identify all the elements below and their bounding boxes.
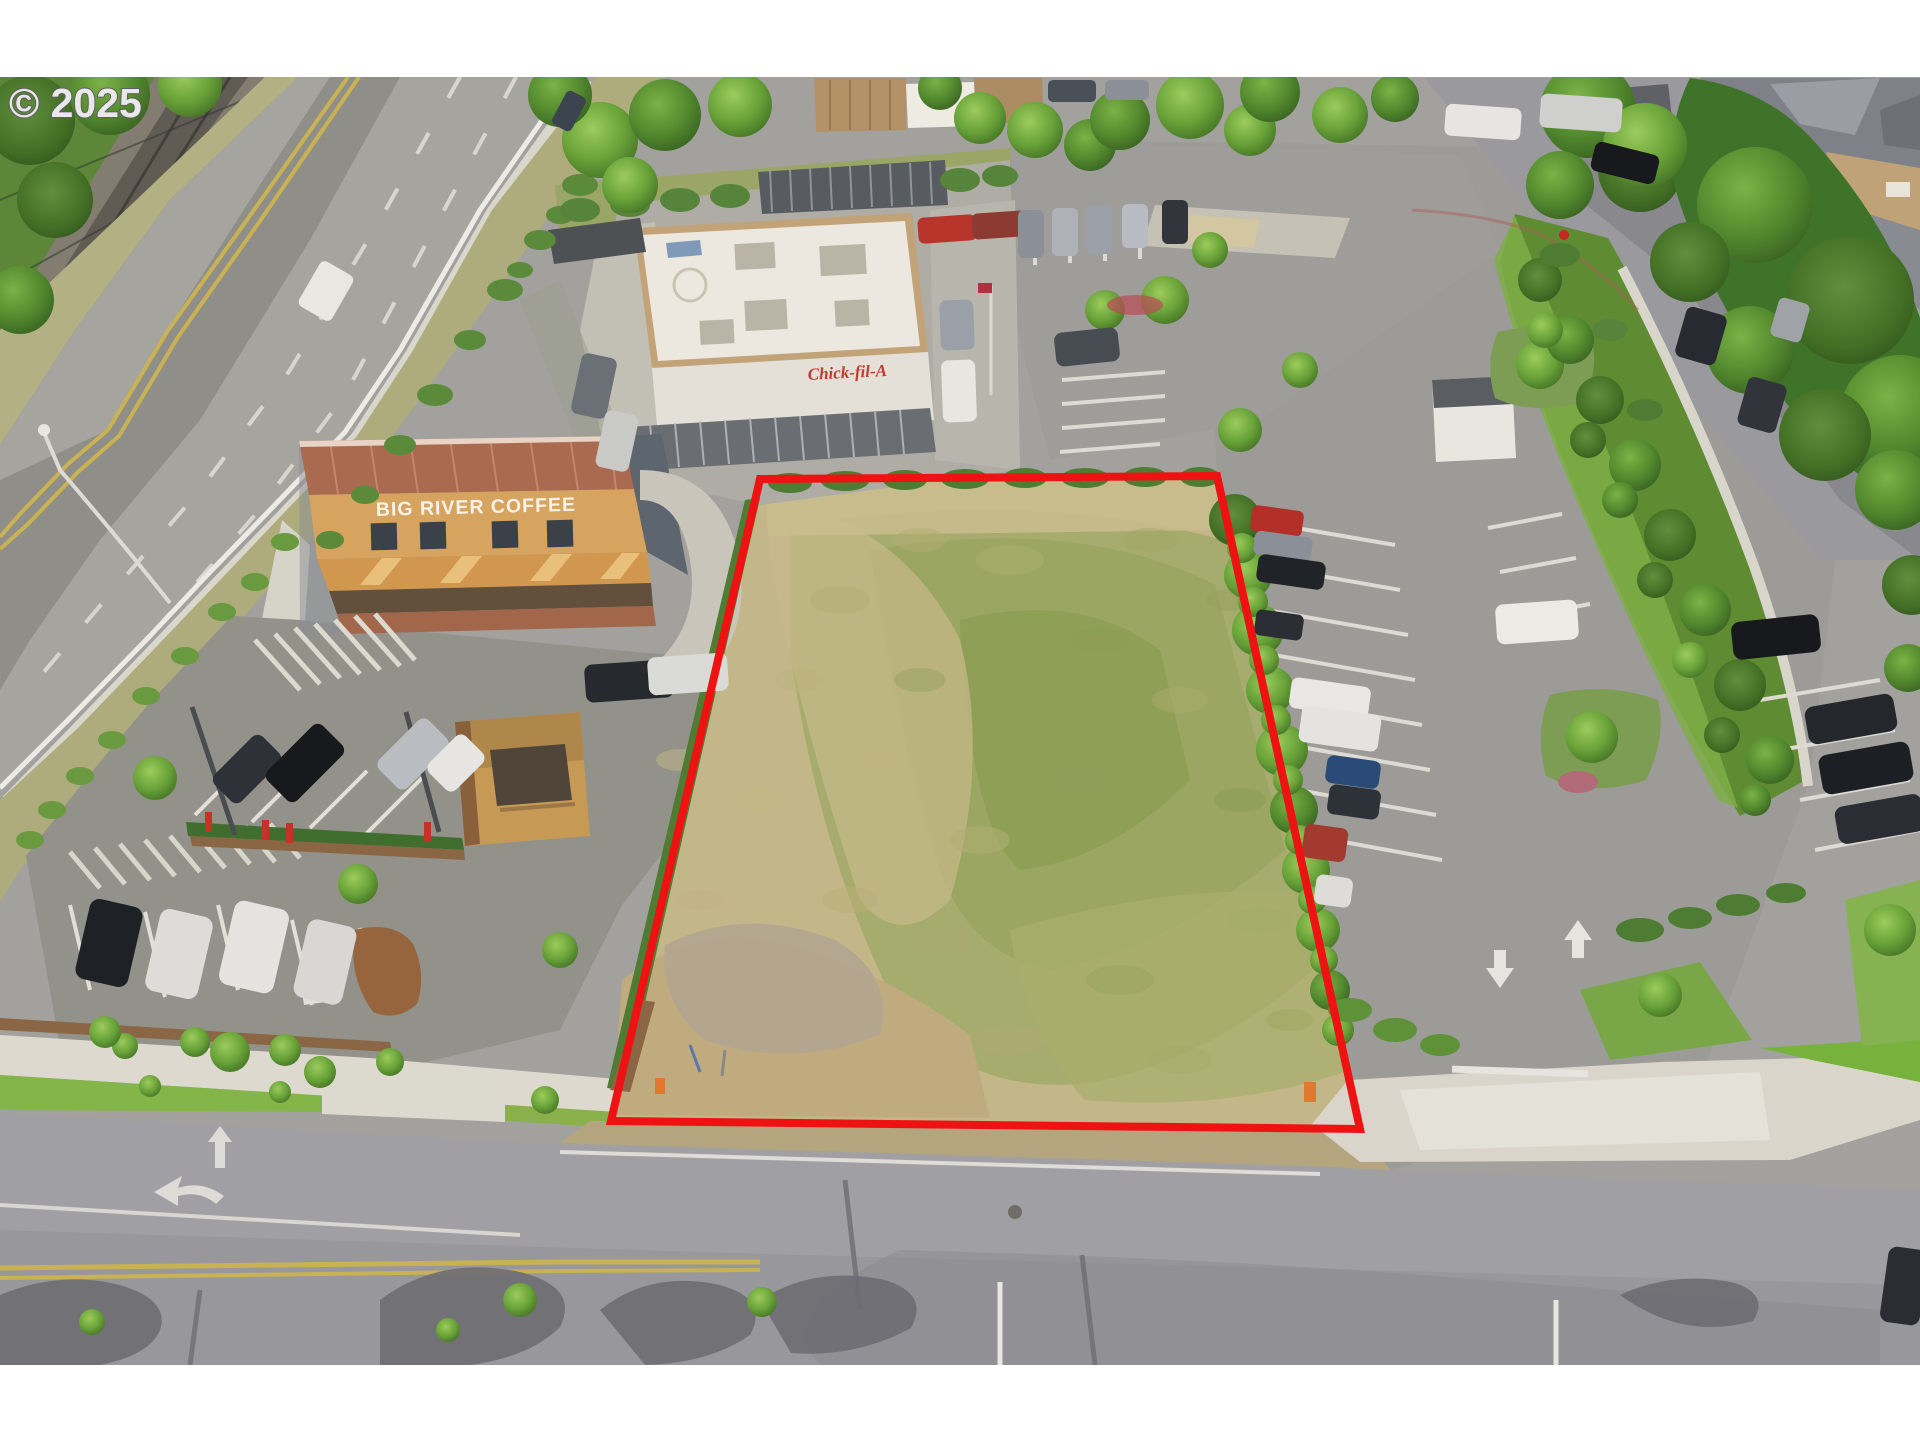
svg-text:© 2025: © 2025 — [9, 80, 142, 126]
